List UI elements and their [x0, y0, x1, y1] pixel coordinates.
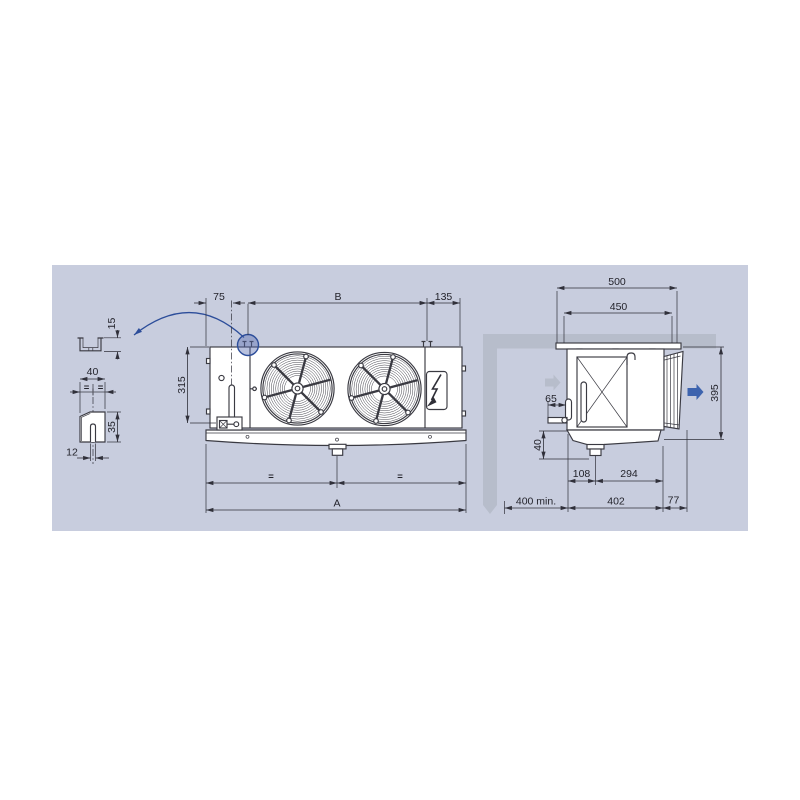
- dim-label-coil-depth: 77: [668, 495, 680, 507]
- side-view: 500 450 395 65 40 108 294 400 min.: [483, 276, 724, 514]
- dim-label-equal-left: =: [268, 472, 274, 483]
- dim-label-side-height: 395: [709, 384, 721, 402]
- dim-label-inner-width: 450: [610, 301, 628, 313]
- dim-label-height: 315: [176, 376, 188, 394]
- dim-label-total-length: A: [333, 498, 340, 510]
- dim-label-span: B: [334, 291, 341, 303]
- dim-label-drain-drop: 40: [532, 439, 544, 451]
- leader-arrow-icon: [134, 313, 244, 338]
- airflow-out-arrow-icon: [688, 384, 704, 400]
- dim-label-outer-width: 500: [608, 276, 626, 288]
- dim-label-equal-a: =: [84, 383, 90, 394]
- drain-fitting-side: [587, 445, 604, 456]
- dim-label-drain-span: 294: [620, 468, 638, 480]
- dim-label-bracket-width: 40: [87, 366, 99, 378]
- dim-label-channel-lip: 15: [106, 318, 118, 330]
- ceiling-plate: [556, 343, 681, 349]
- drawing-panel: 15 40 = = 35 12: [52, 265, 748, 531]
- hanger-bracket-detail: 40 = = 35 12: [66, 366, 121, 464]
- dim-label-depth: 402: [607, 496, 625, 508]
- dim-label-equal-b: =: [98, 383, 104, 394]
- dim-label-clearance: 400 min.: [516, 496, 556, 508]
- dim-label-left-offset: 75: [213, 291, 225, 303]
- dim-label-equal-right: =: [397, 472, 403, 483]
- dim-label-slot-width: 12: [66, 447, 78, 459]
- airflow-in-arrow-icon: [545, 375, 561, 391]
- technical-drawing: 15 40 = = 35 12: [52, 265, 748, 531]
- channel-profile-detail: 15: [78, 318, 122, 360]
- dim-label-drain-offset: 108: [573, 468, 591, 480]
- drip-tray: [206, 430, 466, 446]
- dim-label-right-offset: 135: [435, 291, 453, 303]
- hanger-tab: [422, 342, 433, 348]
- detail-circle: [238, 335, 259, 356]
- dim-label-connection: 65: [545, 393, 557, 405]
- unit-casing: [210, 347, 462, 428]
- coil-block: [664, 352, 683, 430]
- drip-tray-side: [567, 430, 661, 445]
- drain-fitting: [329, 444, 346, 455]
- dim-label-bracket-height: 35: [106, 421, 118, 433]
- front-view: 75 B 135 315 = = A: [176, 291, 466, 513]
